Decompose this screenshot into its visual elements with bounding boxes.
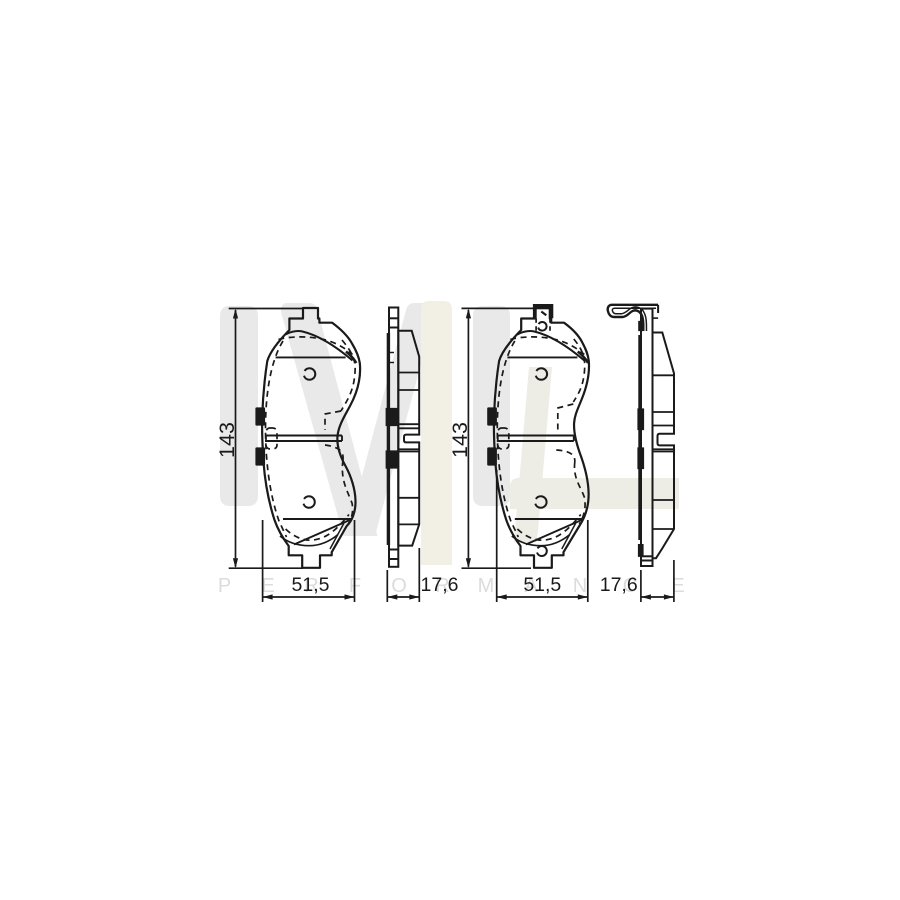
svg-text:51,5: 51,5 bbox=[292, 574, 330, 596]
svg-text:143: 143 bbox=[215, 422, 239, 458]
svg-text:P: P bbox=[218, 575, 231, 597]
svg-text:17,6: 17,6 bbox=[421, 574, 459, 596]
svg-text:17,6: 17,6 bbox=[600, 574, 638, 596]
svg-text:O: O bbox=[391, 575, 407, 597]
svg-text:143: 143 bbox=[448, 422, 472, 458]
svg-text:N: N bbox=[573, 575, 587, 597]
svg-text:M: M bbox=[478, 575, 495, 597]
svg-text:51,5: 51,5 bbox=[523, 574, 561, 596]
